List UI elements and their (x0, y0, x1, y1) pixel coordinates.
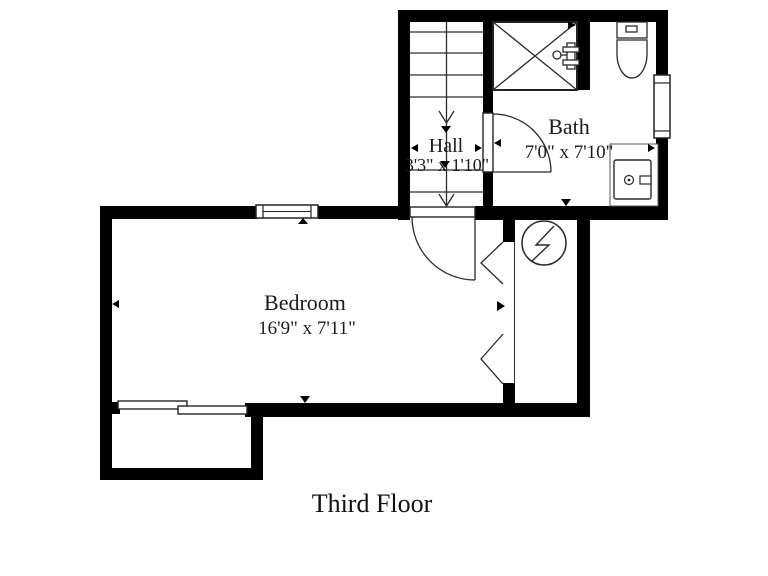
toilet (617, 22, 647, 78)
hall-dimensions: 3'3" x 1'10" (405, 155, 489, 175)
bifold-door-upper (481, 242, 503, 284)
wall-shower-stub (577, 22, 590, 90)
wall-closet-stub-bottom (503, 383, 515, 403)
wall-bedroom-top-mid (318, 206, 410, 219)
stairs-down (410, 22, 483, 206)
sink-vanity (610, 144, 658, 206)
wall-bedroom-top-left (100, 206, 258, 219)
window-frame (654, 75, 670, 138)
bath-label: Bath (548, 114, 590, 139)
wall-hall-bath-upper (483, 22, 493, 113)
wall-closet-stub-top (503, 220, 515, 242)
floor-plan: Hall 3'3" x 1'10" Bath 7'0" x 7'10" Bedr… (0, 0, 768, 576)
dim-tick-hall-vertical-top (441, 126, 451, 133)
lightning-bolt-icon (532, 226, 554, 261)
dim-tick-bath-bottom (561, 199, 571, 206)
shower (493, 22, 577, 90)
dim-tick-bedroom-bottom (300, 396, 310, 403)
floor-plan-drawing: Hall 3'3" x 1'10" Bath 7'0" x 7'10" Bedr… (0, 0, 768, 576)
bath-window (654, 75, 670, 138)
valve-knob (553, 51, 561, 59)
bifold-door-lower (481, 334, 503, 384)
dim-tick-hall-left (411, 144, 418, 152)
bifold-closet-doors (481, 242, 515, 384)
wall-hall-left (398, 10, 410, 220)
toilet-bowl (617, 40, 647, 78)
sink-faucet (640, 176, 651, 184)
wall-bedroom-bottom (245, 403, 590, 417)
bedroom-swing-door (410, 207, 475, 280)
bedroom-label: Bedroom (264, 290, 346, 315)
dim-tick-hall-right (475, 144, 482, 152)
valve-bar-top (563, 47, 579, 52)
dim-tick-closet (497, 301, 505, 311)
sliding-door (118, 401, 247, 414)
electrical-panel-icon (522, 221, 566, 265)
wall-bath-bottom (475, 206, 668, 220)
door-swing-arc (412, 217, 475, 280)
dim-tick-bedroom-top (298, 218, 308, 224)
slider-panel-rear (118, 401, 187, 409)
valve-bar-bottom (563, 60, 579, 65)
dim-tick-bath-left (494, 139, 501, 147)
door-leaf-in-opening (410, 207, 475, 217)
slider-panel-front (178, 406, 247, 414)
toilet-flush-button (626, 26, 637, 32)
hall-label: Hall (429, 135, 464, 157)
bath-dimensions: 7'0" x 7'10" (525, 142, 614, 163)
wall-extension-bottom (100, 468, 263, 480)
wall-bedroom-left (100, 206, 112, 480)
electrical-circle (522, 221, 566, 265)
page-title: Third Floor (312, 489, 433, 518)
sink-drain-dot (628, 179, 631, 182)
bedroom-dimensions: 16'9" x 7'11" (258, 318, 356, 339)
wall-closet-right (577, 220, 590, 417)
dim-tick-bedroom-left (112, 300, 119, 308)
wall-top (398, 10, 668, 22)
bedroom-window (256, 205, 318, 218)
